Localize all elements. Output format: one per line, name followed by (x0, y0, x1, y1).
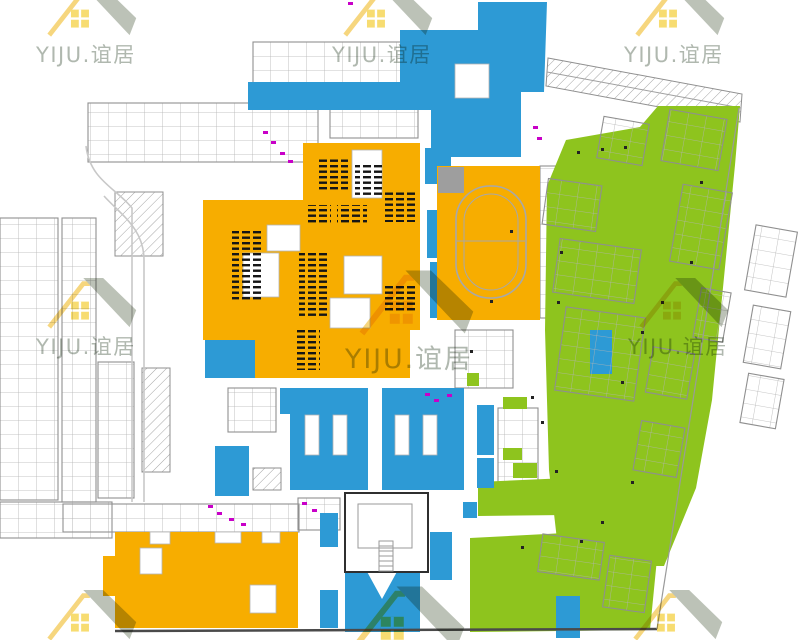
master-plan-drawing (0, 0, 800, 640)
courtyard-building (345, 493, 428, 572)
south-west-building (115, 532, 298, 628)
site-plan-canvas: YIJU.谊居 YIJU.谊居 YIJU.谊居 YIJU.谊居 YIJU.谊居 … (0, 0, 800, 640)
